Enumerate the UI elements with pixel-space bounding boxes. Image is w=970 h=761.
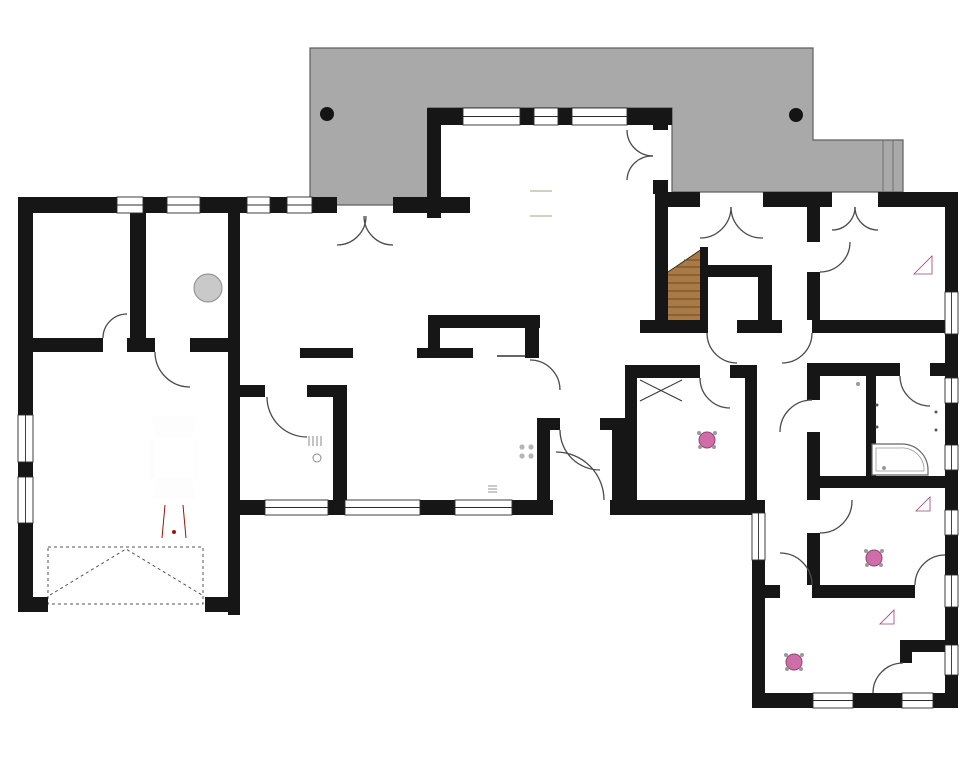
car-rear-window — [152, 478, 196, 499]
wall-68 — [752, 560, 765, 693]
wall-57 — [812, 320, 958, 333]
wall-29 — [228, 500, 265, 515]
floor-plan — [0, 0, 970, 761]
wall-5 — [18, 597, 48, 612]
car-window-left — [149, 438, 154, 481]
wall-46 — [763, 192, 832, 207]
door-front-entry — [556, 452, 604, 500]
boiler-dial — [313, 454, 321, 462]
door-kitchen-hall — [530, 360, 560, 390]
bath2-fixture-1-dot — [935, 411, 938, 414]
door-master-inner — [820, 242, 850, 272]
door-master-double-left — [832, 207, 855, 230]
wall-17 — [427, 108, 463, 125]
wall-33 — [610, 500, 752, 515]
wall-3 — [143, 197, 167, 213]
wall-64 — [812, 476, 958, 488]
door-bathroom-1 — [780, 400, 812, 432]
wall-49 — [655, 192, 668, 322]
wall-67 — [752, 500, 765, 513]
door-closet — [873, 663, 903, 693]
wall-4 — [200, 197, 228, 213]
wall-30 — [328, 500, 345, 515]
door-hall-passage — [782, 333, 812, 363]
car-window-right — [194, 438, 199, 481]
layer-walls — [18, 108, 958, 708]
hall-round-table — [194, 274, 222, 302]
bedroom-b-chair-nub-3 — [785, 667, 789, 671]
wall-73 — [900, 640, 912, 663]
wall-27 — [300, 348, 353, 358]
wall-59 — [930, 363, 958, 376]
wall-70 — [853, 693, 902, 708]
floor-plan-svg — [0, 0, 970, 761]
master-bed-fold — [914, 256, 932, 274]
bath2-sink-1-faucet — [876, 404, 879, 407]
wall-44 — [745, 365, 757, 502]
door-carport — [103, 314, 127, 338]
door-wc — [707, 333, 737, 363]
wall-60 — [807, 363, 820, 400]
wall-71 — [933, 693, 958, 708]
wall-69 — [752, 693, 813, 708]
roof-outline — [310, 48, 903, 205]
door-dining-double-right — [364, 216, 393, 245]
wall-14 — [312, 197, 337, 213]
wall-58 — [812, 363, 900, 376]
wall-1 — [18, 197, 33, 612]
wall-2 — [18, 197, 117, 213]
door-bedroom-a — [820, 500, 852, 533]
car-trunk-line-1 — [162, 505, 165, 538]
wall-38 — [537, 418, 560, 430]
wall-40 — [612, 418, 625, 502]
door-bedroom-a-b — [915, 555, 945, 585]
wall-51 — [702, 265, 758, 277]
wall-13 — [270, 197, 287, 213]
door-utility — [267, 397, 307, 437]
bathtub-1-drain — [856, 382, 860, 386]
wall-19 — [558, 108, 572, 125]
wall-24 — [428, 315, 540, 328]
bedroom-a-fold — [916, 497, 930, 511]
wall-66 — [812, 585, 915, 598]
wall-25 — [525, 315, 539, 358]
car-trunk-line-2 — [183, 505, 186, 538]
door-hall-double-right — [731, 207, 763, 238]
bedroom-b-chair-nub-4 — [799, 667, 803, 671]
door-dining-double-left — [337, 216, 366, 245]
wall-22 — [653, 180, 668, 194]
wall-32 — [512, 500, 553, 515]
wall-18 — [520, 108, 534, 125]
wall-28 — [417, 348, 473, 358]
door-office — [700, 378, 730, 408]
wall-62 — [807, 533, 820, 585]
bedroom-a-chair-nub-4 — [879, 563, 883, 567]
car-windshield — [151, 416, 197, 438]
corner-bathtub-drain — [882, 466, 886, 470]
wall-23 — [427, 197, 470, 213]
wall-9 — [18, 338, 103, 352]
wall-15 — [393, 197, 428, 213]
office-chair-nub-4 — [712, 445, 716, 449]
office-chair-nub-3 — [698, 445, 702, 449]
wall-31 — [420, 500, 455, 515]
roof-column-2 — [789, 108, 803, 122]
bedroom-b-fold — [880, 610, 894, 624]
office-chair-nub-2 — [713, 431, 717, 435]
door-terrace-double-bottom — [627, 156, 653, 180]
layer-furniture — [194, 191, 938, 671]
garage-door-outline — [48, 547, 203, 604]
wall-8 — [130, 210, 146, 340]
wall-55 — [640, 320, 708, 333]
wall-7 — [228, 197, 240, 615]
wall-43 — [625, 365, 637, 502]
bedroom-b-chair-nub-2 — [800, 653, 804, 657]
wall-11 — [190, 338, 240, 352]
door-bathroom-2 — [900, 376, 930, 406]
wall-50 — [700, 247, 708, 322]
stove-burner-2 — [528, 444, 533, 449]
wall-56 — [737, 320, 782, 333]
bedroom-a-chair-nub-2 — [880, 549, 884, 553]
wall-37 — [537, 418, 550, 502]
bedroom-a-chair-nub-1 — [864, 549, 868, 553]
bedroom-b-chair-nub-1 — [784, 653, 788, 657]
bedroom-a-chair-nub-3 — [865, 563, 869, 567]
stove-burner-3 — [519, 453, 524, 458]
garage-door-swing — [50, 549, 202, 595]
corner-bathtub — [872, 444, 928, 475]
wall-21 — [653, 108, 668, 130]
stove-burner-4 — [528, 453, 533, 458]
door-master-double-right — [855, 207, 878, 230]
wall-54 — [807, 272, 820, 320]
wall-34 — [228, 385, 265, 397]
wall-10 — [127, 338, 155, 352]
door-hall-garage — [155, 352, 190, 387]
wall-53 — [807, 207, 820, 242]
door-vestibule — [560, 430, 600, 470]
door-terrace-double-top — [627, 130, 653, 156]
door-hall-double-left — [700, 207, 731, 238]
office-chair-nub-1 — [697, 431, 701, 435]
car-trunk-dot — [172, 530, 176, 534]
stove-burner-1 — [519, 444, 524, 449]
wall-52 — [758, 265, 772, 322]
wall-61 — [807, 432, 820, 500]
bath2-fixture-2-dot — [935, 429, 938, 432]
bath2-sink-2-faucet — [876, 426, 879, 429]
wall-36 — [333, 385, 347, 502]
roof-column-1 — [320, 107, 334, 121]
wall-12 — [240, 197, 247, 213]
